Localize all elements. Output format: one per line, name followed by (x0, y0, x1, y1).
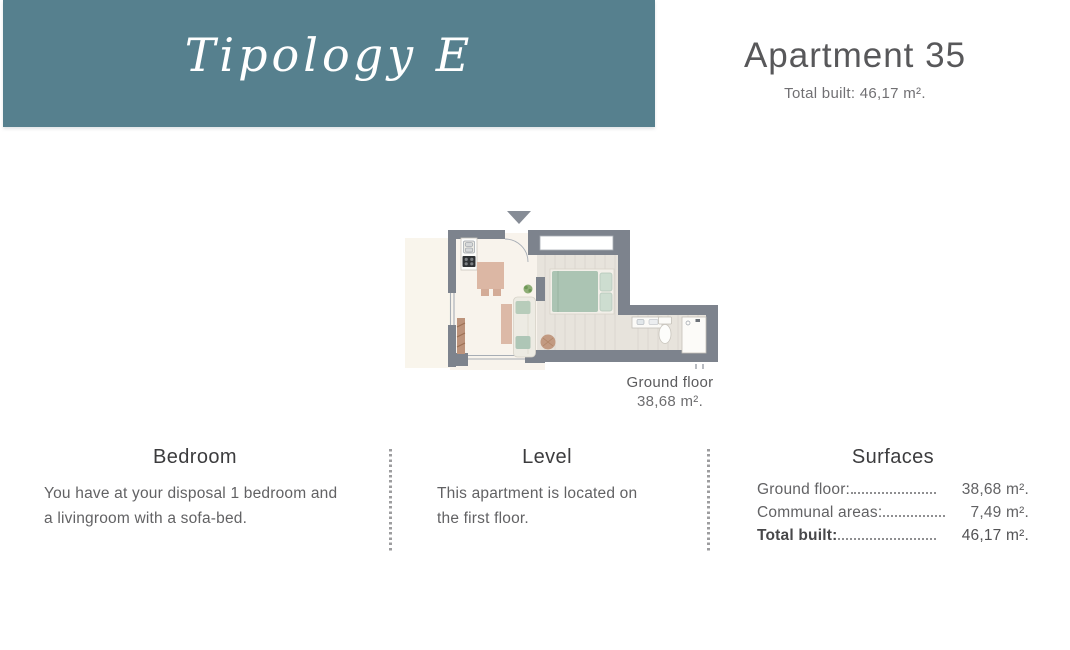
tipology-title: Tipology E (185, 28, 474, 100)
floor-name: Ground floor (585, 374, 755, 391)
plant-icon (524, 285, 533, 294)
dotted-divider-left (389, 449, 392, 552)
sofa-icon (514, 297, 536, 357)
floor-plan-drawing (400, 205, 760, 375)
level-section: Level This apartment is located on the f… (402, 446, 692, 532)
level-description: This apartment is located on the first f… (437, 482, 657, 532)
coffee-table-icon (501, 304, 512, 344)
toilet-icon (659, 317, 672, 344)
vanity-icon (632, 317, 662, 328)
surface-value: 38,68 m². (962, 481, 1029, 499)
surface-row-communal-areas: Communal areas: 7,49 m². (757, 504, 1029, 527)
surface-value: 46,17 m². (962, 527, 1029, 545)
surfaces-section: Surfaces Ground floor: 38,68 m². Communa… (757, 446, 1029, 550)
surface-label: Ground floor: (757, 481, 850, 499)
bed-icon (550, 269, 614, 314)
surface-label: Communal areas: (757, 504, 882, 522)
surfaces-table: Ground floor: 38,68 m². Communal areas: … (757, 481, 1029, 550)
shower-icon (682, 317, 706, 353)
dimension-ticks (696, 364, 703, 369)
console-shelf-icon (457, 318, 465, 354)
apartment-title: Apartment 35 (680, 36, 1030, 76)
tipology-banner: Tipology E (3, 0, 655, 127)
surfaces-heading: Surfaces (757, 446, 1029, 469)
floor-area: 38,68 m². (585, 393, 755, 410)
dotted-divider-right (707, 449, 710, 552)
level-heading: Level (402, 446, 692, 469)
bedroom-description: You have at your disposal 1 bedroom and … (44, 482, 346, 532)
ground-floor-label: Ground floor 38,68 m². (585, 374, 755, 410)
pouf-icon (541, 335, 556, 350)
floor-plan (400, 205, 760, 375)
bedroom-heading: Bedroom (30, 446, 360, 469)
dotted-leader (838, 538, 935, 540)
surface-value: 7,49 m². (971, 504, 1029, 522)
dotted-leader (851, 492, 936, 494)
entrance-arrow-icon (507, 211, 531, 224)
apartment-header: Apartment 35 Total built: 46,17 m². (680, 36, 1030, 102)
surface-row-total-built: Total built: 46,17 m². (757, 527, 1029, 550)
apartment-total-built: Total built: 46,17 m². (680, 85, 1030, 102)
bedroom-section: Bedroom You have at your disposal 1 bedr… (30, 446, 360, 532)
surface-row-ground-floor: Ground floor: 38,68 m². (757, 481, 1029, 504)
kitchen-unit-icon (461, 238, 477, 270)
dotted-leader (883, 515, 944, 517)
terrace-area (405, 238, 455, 368)
surface-label: Total built: (757, 527, 837, 545)
